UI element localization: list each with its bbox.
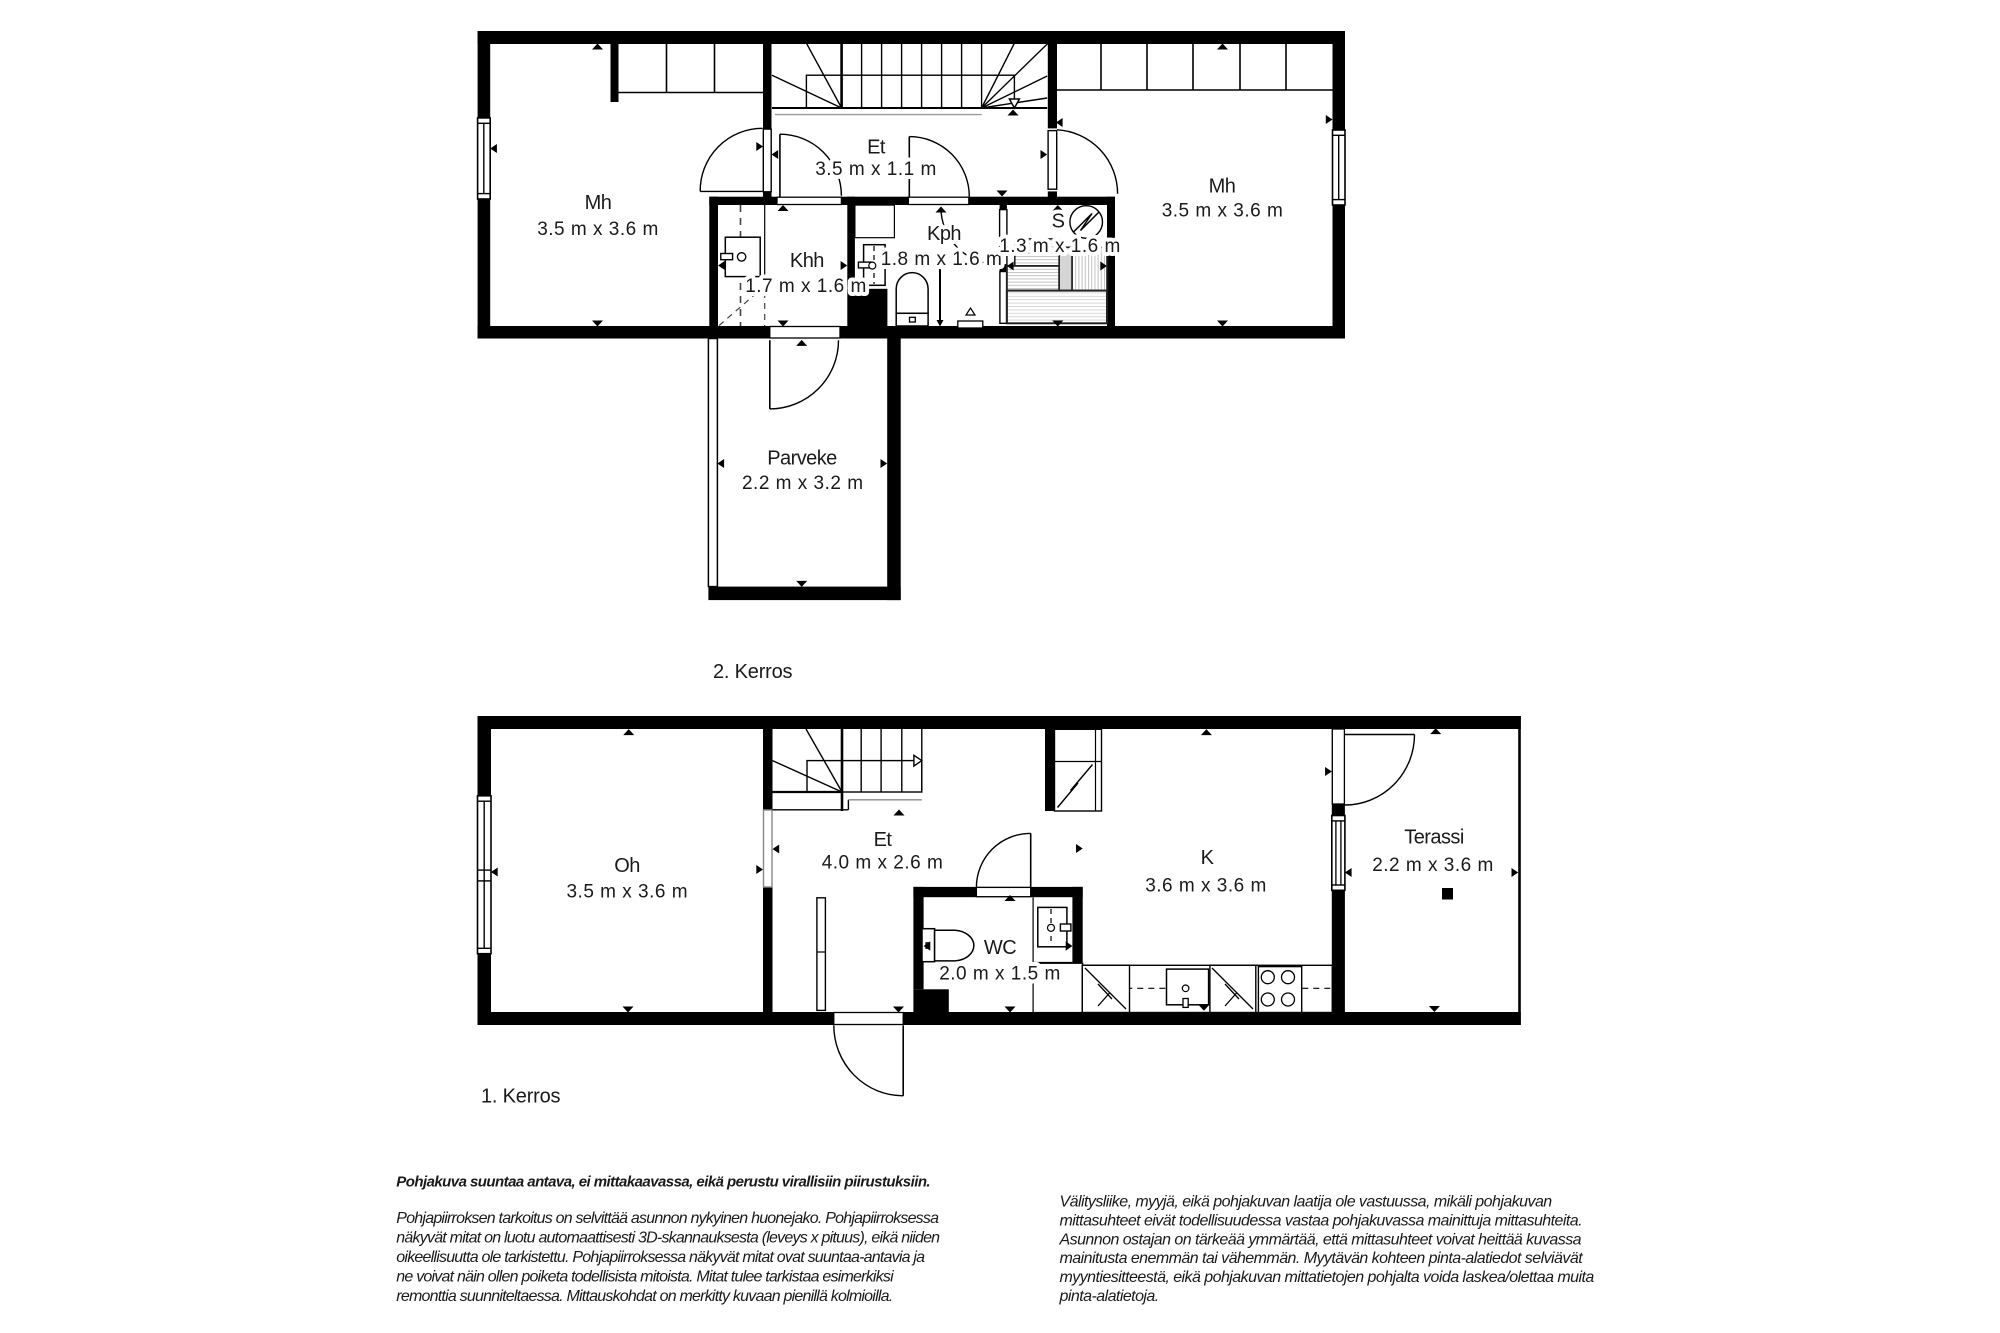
svg-text:2.2 m x 3.2 m: 2.2 m x 3.2 m: [742, 473, 864, 494]
svg-text:oikeellisuutta ole tarkistettu: oikeellisuutta ole tarkistettu. Pohjapii…: [396, 1249, 925, 1266]
svg-text:Mh: Mh: [1209, 176, 1236, 198]
svg-text:Oh: Oh: [614, 855, 640, 877]
svg-text:remonttia suunniteltaessa. Mit: remonttia suunniteltaessa. Mittauskohdat…: [396, 1288, 892, 1305]
svg-text:näkyvät mitat on luotu automaa: näkyvät mitat on luotu automaattisesti 3…: [396, 1230, 940, 1247]
svg-text:Asunnon ostajan on tärkeää ymm: Asunnon ostajan on tärkeää ymmärtää, ett…: [1059, 1231, 1582, 1248]
svg-text:ne voivat näin ollen poiketa t: ne voivat näin ollen poiketa todellisist…: [396, 1269, 894, 1286]
svg-text:mittasuhteet eivät todellisuud: mittasuhteet eivät todellisuudessa vasta…: [1060, 1212, 1583, 1229]
svg-text:S: S: [1052, 211, 1065, 233]
svg-text:3.6 m x 3.6 m: 3.6 m x 3.6 m: [1145, 876, 1267, 897]
svg-text:Terassi: Terassi: [1404, 827, 1464, 849]
svg-text:2.0 m x 1.5 m: 2.0 m x 1.5 m: [939, 964, 1061, 985]
svg-text:3.5 m x 1.1 m: 3.5 m x 1.1 m: [815, 159, 937, 180]
svg-text:1.3 m x 1.6 m: 1.3 m x 1.6 m: [999, 236, 1121, 257]
svg-text:4.0 m x 2.6 m: 4.0 m x 2.6 m: [822, 853, 944, 874]
svg-text:Pohjakuva suuntaa antava, ei m: Pohjakuva suuntaa antava, ei mittakaavas…: [396, 1174, 930, 1191]
svg-text:Pohjapiirroksen tarkoitus on s: Pohjapiirroksen tarkoitus on selvittää a…: [396, 1210, 939, 1227]
svg-text:pinta-alatietoja.: pinta-alatietoja.: [1059, 1288, 1159, 1305]
svg-text:1.8 m x 1.6 m: 1.8 m x 1.6 m: [881, 249, 1003, 270]
svg-text:Kph: Kph: [927, 223, 961, 245]
svg-text:K: K: [1201, 847, 1215, 869]
svg-text:Parveke: Parveke: [767, 448, 837, 470]
svg-text:3.5 m x 3.6 m: 3.5 m x 3.6 m: [1162, 201, 1284, 222]
svg-text:Et: Et: [867, 137, 886, 159]
svg-text:Et: Et: [874, 829, 893, 851]
svg-text:Välitysliike, myyjä, eikä pohj: Välitysliike, myyjä, eikä pohjakuvan laa…: [1060, 1194, 1553, 1211]
svg-text:myyntiesitteestä, eikä pohjaku: myyntiesitteestä, eikä pohjakuvan mittat…: [1060, 1269, 1595, 1286]
svg-text:1. Kerros: 1. Kerros: [481, 1086, 561, 1108]
svg-text:WC: WC: [984, 937, 1016, 959]
svg-text:2. Kerros: 2. Kerros: [713, 661, 793, 683]
svg-text:2.2 m x 3.6 m: 2.2 m x 3.6 m: [1372, 855, 1494, 876]
svg-text:3.5 m x 3.6 m: 3.5 m x 3.6 m: [537, 219, 659, 240]
svg-text:Khh: Khh: [790, 250, 824, 272]
svg-text:3.5 m x 3.6 m: 3.5 m x 3.6 m: [566, 881, 688, 902]
svg-text:Mh: Mh: [585, 192, 612, 214]
svg-text:1.7 m x 1.6 m: 1.7 m x 1.6 m: [745, 276, 867, 297]
svg-text:mainitusta enemmän tai vähemmä: mainitusta enemmän tai vähemmän. Myytävä…: [1060, 1250, 1584, 1267]
